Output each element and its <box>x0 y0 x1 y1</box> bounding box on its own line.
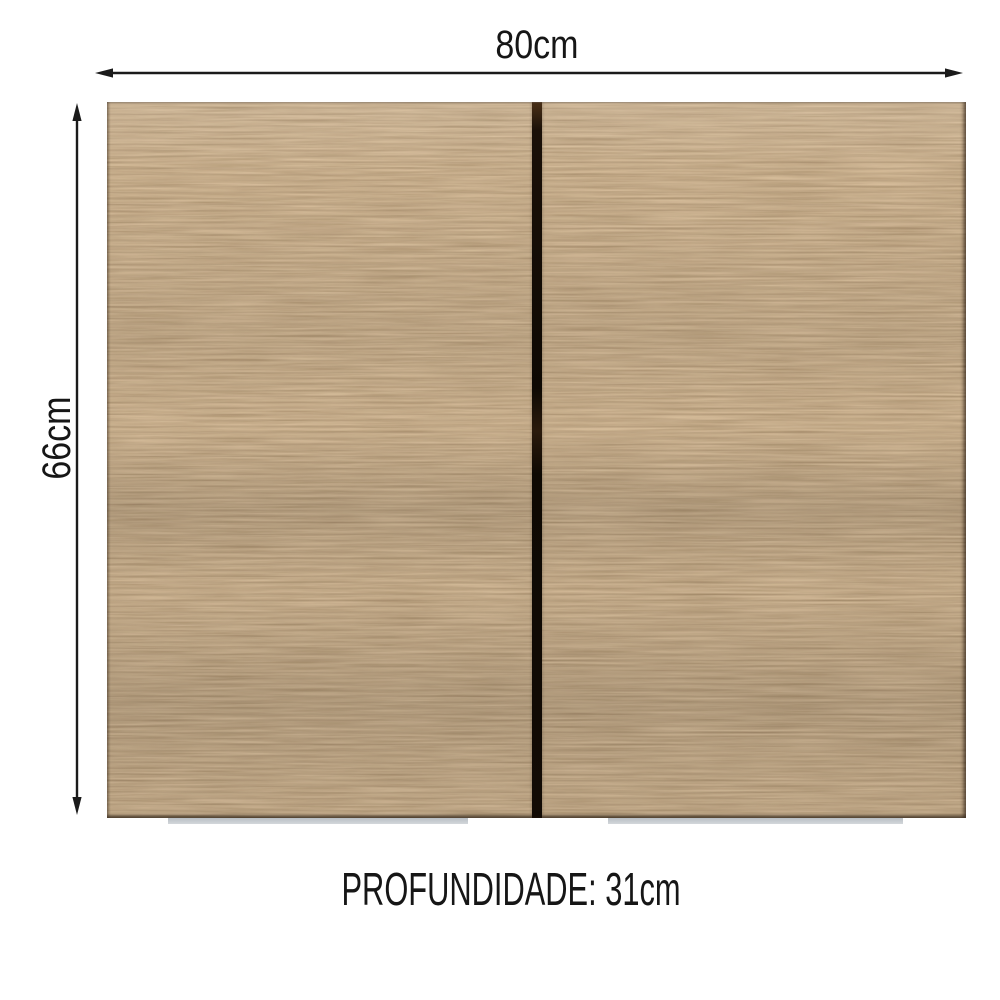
arrowhead-right-icon <box>945 68 963 77</box>
door-gap <box>532 102 542 818</box>
product-dimension-diagram: 80cm 66cm <box>0 0 1000 1000</box>
arrowhead-top-icon <box>72 103 81 121</box>
height-dimension-arrow <box>71 103 83 815</box>
width-dimension-text: 80cm <box>495 25 578 65</box>
cabinet-door-right <box>542 102 966 818</box>
door-shading <box>542 102 966 818</box>
depth-text: PROFUNDIDADE: 31cm <box>341 866 680 912</box>
width-dimension-arrow <box>95 67 963 79</box>
arrowhead-bottom-icon <box>72 797 81 815</box>
cabinet-door-left <box>107 102 532 818</box>
depth-label: PROFUNDIDADE: 31cm <box>0 866 1000 912</box>
right-door-bottom-trim <box>608 818 903 824</box>
arrowhead-left-icon <box>95 68 113 77</box>
cabinet <box>107 102 966 818</box>
left-door-bottom-trim <box>168 818 468 824</box>
door-shading <box>107 102 532 818</box>
width-dimension-label: 80cm <box>107 25 966 65</box>
